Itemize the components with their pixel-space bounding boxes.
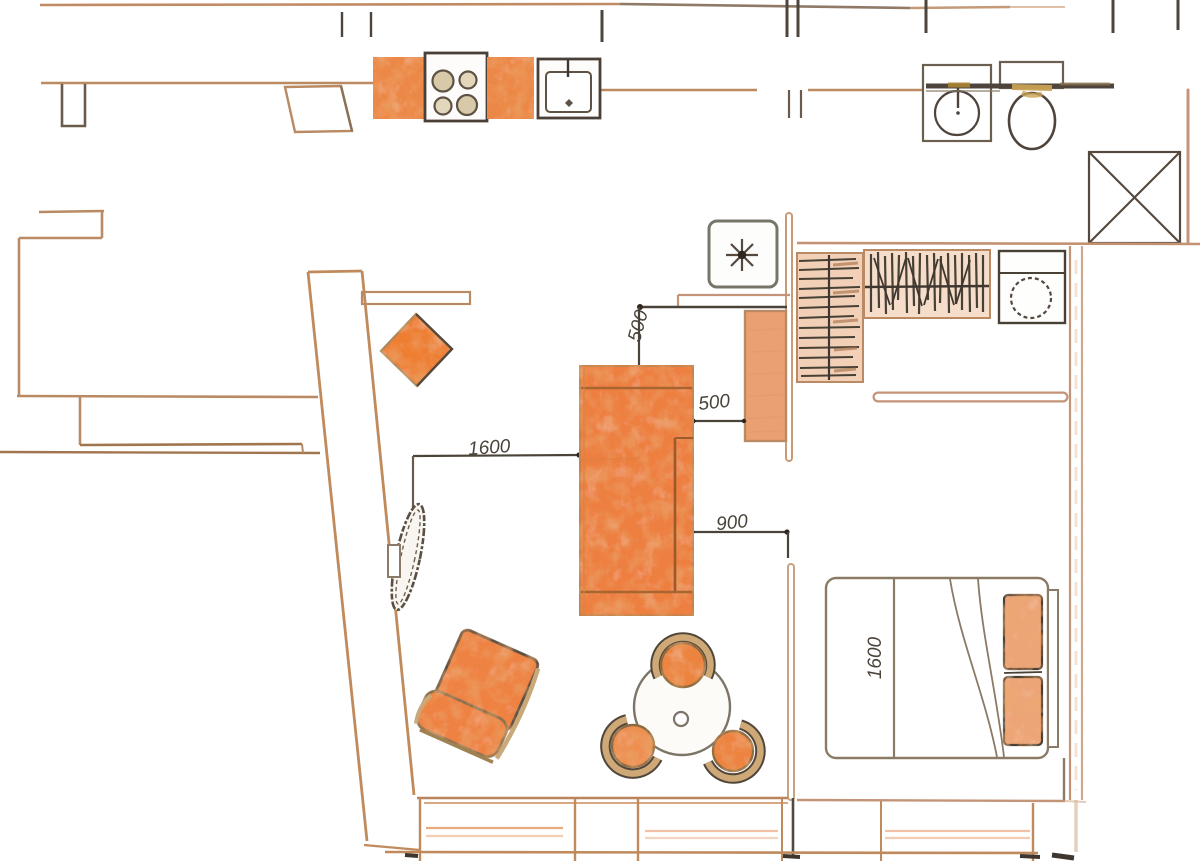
svg-text:1600: 1600 — [865, 636, 886, 679]
svg-text:500: 500 — [697, 391, 731, 415]
